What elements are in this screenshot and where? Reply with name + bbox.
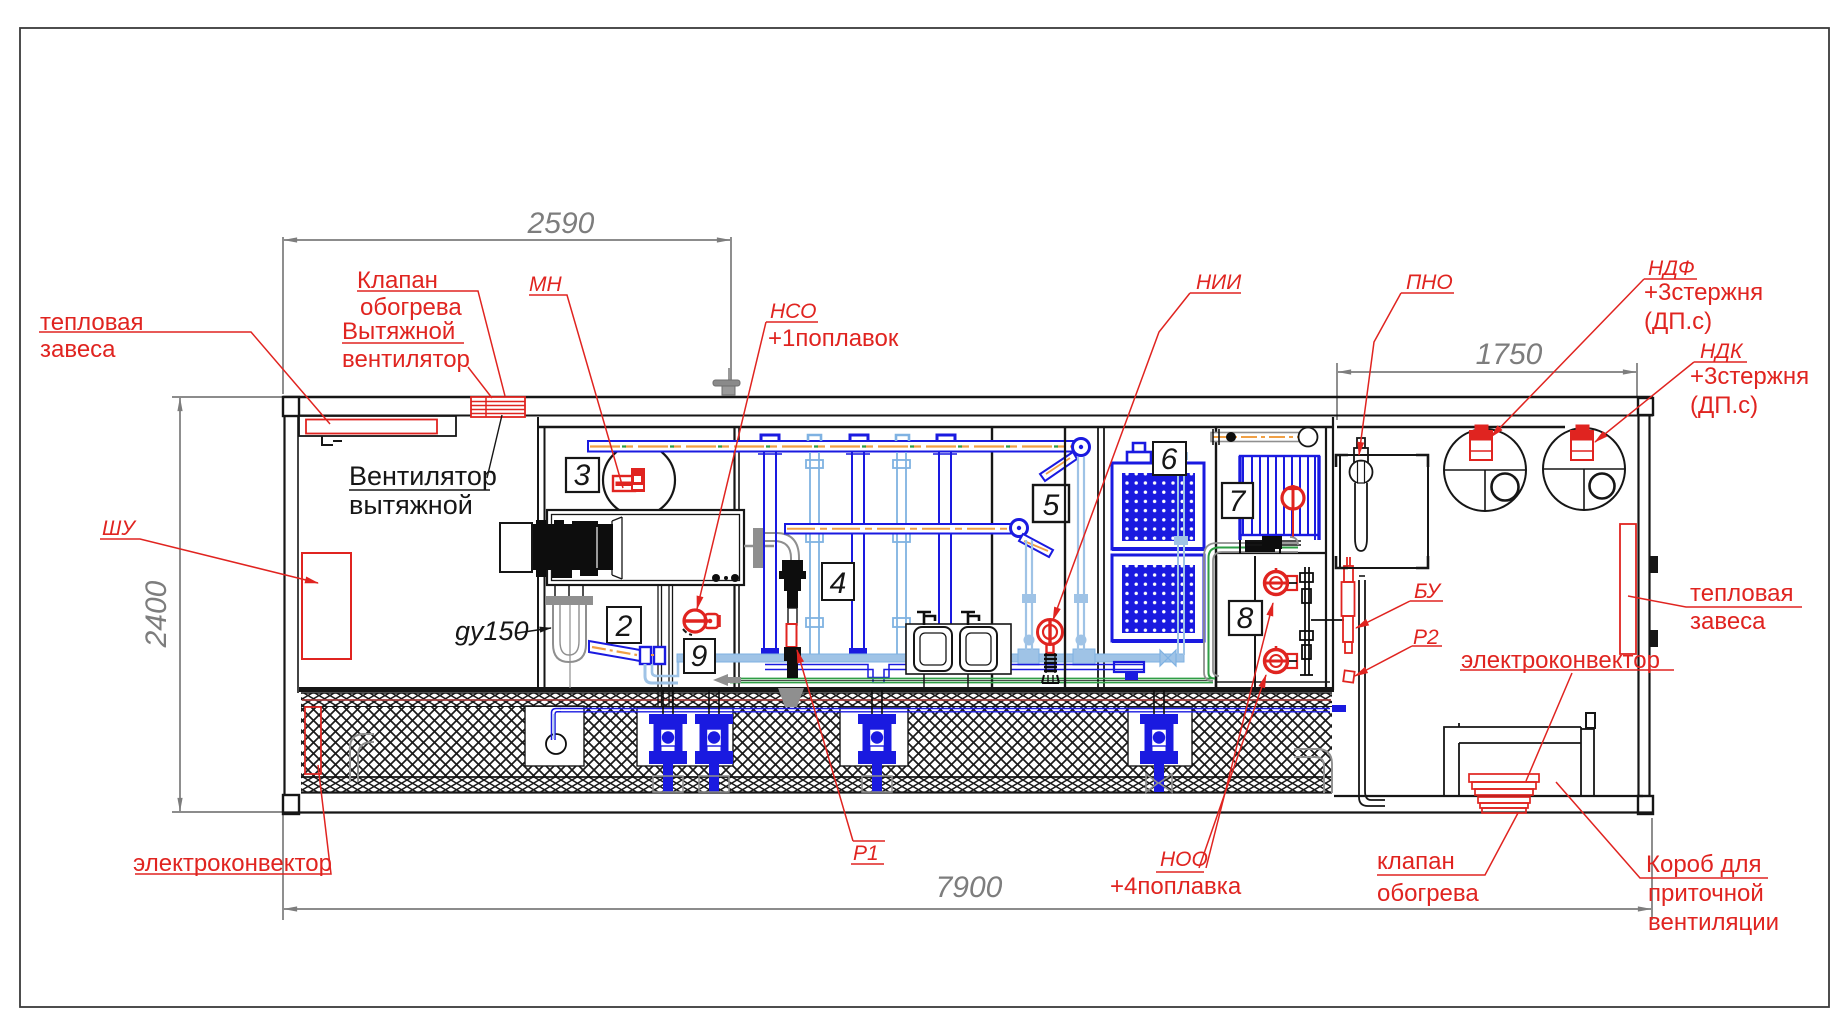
svg-text:клапан: клапан — [1377, 848, 1455, 875]
svg-text:(ДП.с): (ДП.с) — [1644, 308, 1712, 335]
svg-text:gy150: gy150 — [455, 616, 529, 646]
svg-text:2400: 2400 — [140, 580, 173, 648]
svg-text:ПНО: ПНО — [1406, 271, 1453, 294]
svg-text:+1поплавок: +1поплавок — [768, 325, 899, 352]
svg-text:электроконвектор: электроконвектор — [133, 850, 332, 877]
svg-text:5: 5 — [1043, 489, 1060, 522]
svg-text:НОО: НОО — [1160, 848, 1208, 871]
svg-text:вентиляции: вентиляции — [1648, 909, 1779, 936]
svg-text:электроконвектор: электроконвектор — [1461, 647, 1660, 674]
svg-text:Вытяжной: Вытяжной — [342, 318, 455, 345]
svg-text:Р1: Р1 — [853, 842, 879, 865]
svg-text:1750: 1750 — [1476, 338, 1543, 371]
svg-text:вентилятор: вентилятор — [342, 346, 470, 373]
svg-text:тепловая: тепловая — [40, 309, 144, 336]
svg-text:НСО: НСО — [770, 300, 816, 323]
svg-text:(ДП.с): (ДП.с) — [1690, 392, 1758, 419]
svg-text:ШУ: ШУ — [102, 517, 137, 540]
svg-text:9: 9 — [691, 640, 708, 673]
svg-text:3: 3 — [574, 459, 591, 492]
svg-text:завеса: завеса — [1690, 608, 1766, 635]
svg-text:НДФ: НДФ — [1648, 257, 1695, 280]
svg-text:Короб для: Короб для — [1646, 851, 1761, 878]
svg-text:Клапан: Клапан — [357, 267, 438, 294]
svg-text:7: 7 — [1229, 485, 1247, 518]
svg-text:НДК: НДК — [1700, 340, 1744, 363]
svg-text:2: 2 — [615, 610, 633, 643]
svg-text:Вентилятор: Вентилятор — [349, 461, 497, 491]
svg-text:приточной: приточной — [1648, 880, 1764, 907]
svg-text:2590: 2590 — [527, 207, 595, 240]
svg-text:обогрева: обогрева — [1377, 880, 1479, 907]
svg-text:7900: 7900 — [936, 871, 1003, 904]
svg-text:БУ: БУ — [1414, 580, 1442, 603]
svg-text:НИИ: НИИ — [1196, 271, 1242, 294]
svg-text:6: 6 — [1161, 443, 1178, 476]
svg-text:+4поплавка: +4поплавка — [1110, 873, 1242, 900]
svg-text:4: 4 — [830, 567, 847, 600]
svg-text:МН: МН — [529, 273, 562, 296]
svg-text:+3стержня: +3стержня — [1690, 363, 1809, 390]
svg-text:вытяжной: вытяжной — [349, 490, 473, 520]
svg-text:обогрева: обогрева — [360, 294, 462, 321]
svg-text:Р2: Р2 — [1413, 626, 1439, 649]
svg-text:тепловая: тепловая — [1690, 580, 1794, 607]
svg-text:8: 8 — [1237, 602, 1254, 635]
svg-text:завеса: завеса — [40, 336, 116, 363]
svg-text:+3стержня: +3стержня — [1644, 279, 1763, 306]
